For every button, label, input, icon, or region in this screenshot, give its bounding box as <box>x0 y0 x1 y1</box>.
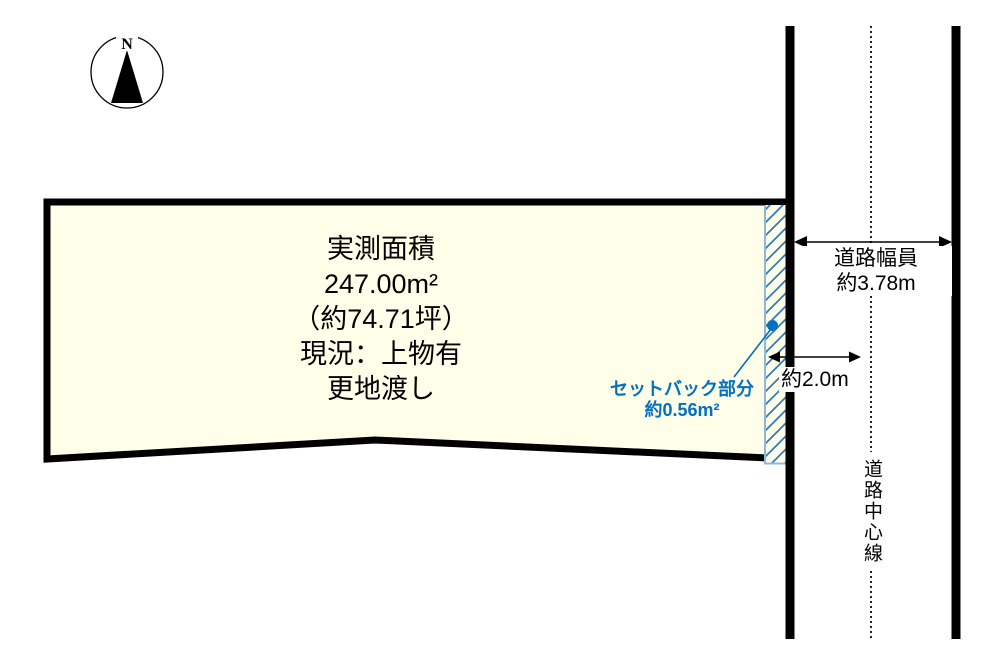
setback-area-value: 約0.56m² <box>596 400 768 421</box>
road-width-annotation: 道路幅員 約3.78m <box>800 246 952 296</box>
parcel-delivery-condition: 更地渡し <box>246 372 516 407</box>
parcel-area-tsubo: （約74.71坪） <box>246 302 516 337</box>
road-width-value: 約3.78m <box>800 271 952 296</box>
compass: N <box>91 33 163 108</box>
setback-area-annotation: セットバック部分 約0.56m² <box>596 379 768 421</box>
parcel-area-sqm: 247.00m² <box>246 267 516 302</box>
compass-north-label: N <box>121 36 133 53</box>
parcel-area-title: 実測面積 <box>246 232 516 267</box>
road-centerline-annotation: 道路中心線 <box>859 452 885 570</box>
setback-distance-annotation: 約2.0m <box>779 367 851 392</box>
setback-title: セットバック部分 <box>596 379 768 400</box>
setback-marker-dot <box>767 320 778 331</box>
parcel-current-status: 現況：上物有 <box>246 337 516 372</box>
parcel-info-text: 実測面積 247.00m² （約74.71坪） 現況：上物有 更地渡し <box>246 232 516 407</box>
road-width-title: 道路幅員 <box>800 246 952 271</box>
land-plot-diagram: N 実測面積 247.00m² （約74.71坪） 現況：上物有 更地渡し 道路… <box>0 0 1000 666</box>
